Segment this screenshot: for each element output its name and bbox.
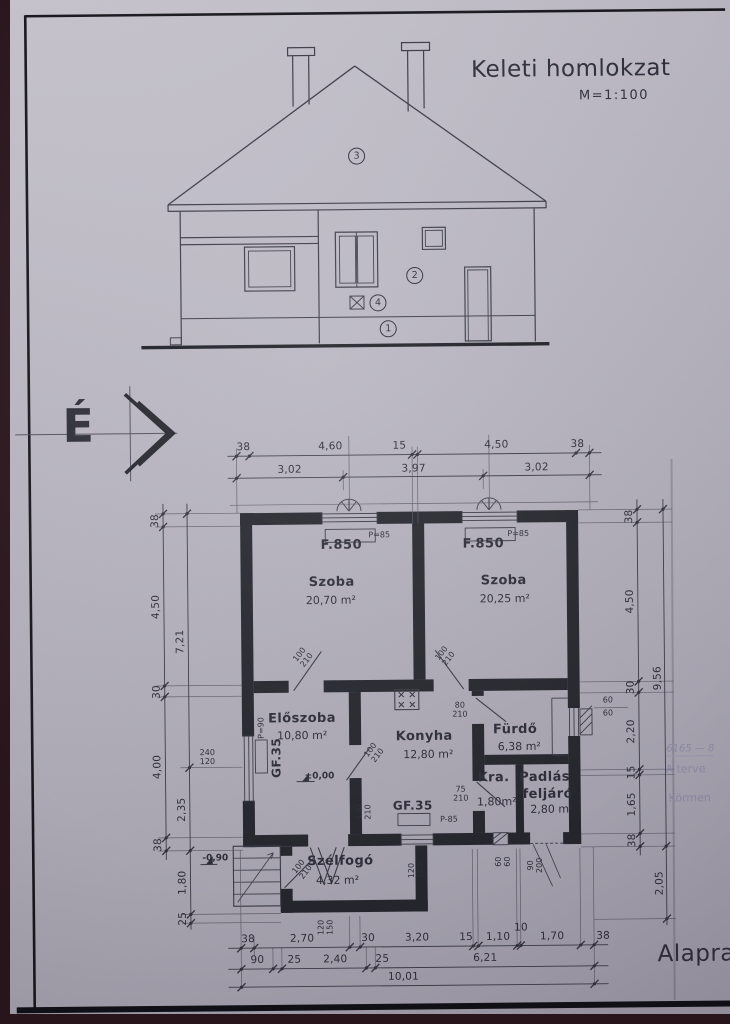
stove-icon <box>395 689 419 709</box>
dim-label: 1,10 <box>486 931 510 943</box>
window-small-bottom <box>493 833 508 845</box>
dim-label: 1,70 <box>540 930 564 942</box>
window-size-furdo-w: 60 <box>603 696 613 705</box>
bathtub-icon <box>552 698 569 755</box>
elevation-scale: M=1:100 <box>579 88 649 104</box>
dim-label: 15 <box>625 766 637 780</box>
elevation-marker-1: 1 <box>380 320 397 337</box>
radiator-eloszoba <box>255 740 267 773</box>
radiator-tag-p85-right: P=85 <box>507 529 529 538</box>
room-name-konyha: Konyha <box>396 729 453 745</box>
door-height: 210 <box>364 804 373 819</box>
dim-label: 38 <box>596 930 610 942</box>
plan-title: Alapra <box>657 940 730 967</box>
room-name-szoba1: Szoba <box>309 575 355 590</box>
window-tag-f850-right: F.850 <box>462 536 504 551</box>
room-area-kamra: 1,80m² <box>477 795 517 808</box>
window-height: 120 <box>200 757 215 766</box>
dim-label: 15 <box>459 931 473 943</box>
dim-label: 1,80 <box>176 871 188 895</box>
level-zero-label: ±0,00 <box>305 771 335 781</box>
window-tag-gf35-bottom: GF.35 <box>393 798 433 812</box>
room-area-konyha: 12,80 m² <box>403 748 453 761</box>
dim-label: 2,20 <box>625 719 637 743</box>
dim-label: 30 <box>151 685 163 699</box>
dim-label: 6,21 <box>473 952 497 964</box>
window-tag-f850-left: F.850 <box>320 538 362 553</box>
window-height: 150 <box>326 920 335 935</box>
dim-label: 2,05 <box>653 871 665 895</box>
dim-label: 38 <box>570 438 584 450</box>
room-name-eloszoba: Előszoba <box>268 711 336 727</box>
dim-label: 4,00 <box>151 755 163 779</box>
window-furdo <box>569 706 592 736</box>
door-size-entry: 130 210 <box>355 804 372 819</box>
roof-slope-right <box>355 64 546 203</box>
dim-label: 15 <box>392 440 406 452</box>
dim-label: 3,02 <box>277 464 301 476</box>
room-area-szelfogo: 4,32 m² <box>316 874 359 887</box>
north-arrow-icon <box>15 386 178 483</box>
window-konyha <box>401 833 433 845</box>
ground-line <box>141 344 549 348</box>
elevation-marker-4: 4 <box>369 294 386 311</box>
door-size-furdo: 80 210 <box>452 702 467 719</box>
radiator-tag-p85-left: P=85 <box>368 530 390 539</box>
room-name-szoba2: Szoba <box>481 573 527 588</box>
window-size-ref: 120 150 <box>317 920 334 935</box>
dim-label: 4,50 <box>150 595 162 619</box>
elevation-drawing <box>139 41 550 347</box>
door-height: 210 <box>452 710 467 719</box>
dim-label: 3,20 <box>405 931 429 943</box>
window-height: 60 <box>503 857 512 867</box>
dim-label: 10 <box>514 921 528 933</box>
radiator-konyha <box>398 813 430 825</box>
elevation-window-left <box>244 247 294 291</box>
dim-label: 25 <box>375 953 389 965</box>
window-tag-gf35-left: GF.35 <box>269 738 283 778</box>
dim-label: 3,97 <box>401 462 425 474</box>
room-area-szoba2: 20,25 m² <box>480 592 530 605</box>
dim-label: 3,02 <box>524 461 548 473</box>
room-area-szoba1: 20,70 m² <box>306 594 356 607</box>
door-height: 210 <box>453 794 468 803</box>
dim-label: 38 <box>626 834 638 848</box>
dim-label: 4,50 <box>484 439 508 451</box>
vent-box-icon <box>350 296 364 309</box>
room-name-padlas-2: feljáró <box>522 787 572 802</box>
dim-label: 9,56 <box>651 666 663 690</box>
dim-label: 38 <box>149 514 161 528</box>
dim-label: 30 <box>361 932 375 944</box>
dim-label: 38 <box>241 933 255 945</box>
dim-label: 90 <box>250 954 264 966</box>
dim-label: 2,40 <box>323 953 347 965</box>
stamp-note-3: Körmen <box>669 791 711 804</box>
room-name-padlas-1: Padlás <box>519 770 570 785</box>
dim-label: 4,60 <box>318 440 342 452</box>
dim-label: 7,21 <box>174 630 186 654</box>
room-area-padlas: 2,80 m² <box>530 803 573 816</box>
window-height: 150 <box>416 863 425 878</box>
level-minus-label: -0,90 <box>202 853 228 863</box>
dim-label: 4,50 <box>624 589 636 613</box>
window-size-konyha: 120 150 <box>408 863 425 878</box>
room-name-szelfogo: Szélfogó <box>307 853 373 869</box>
dim-label: 30 <box>625 681 637 695</box>
dim-label: 38 <box>236 441 250 453</box>
dim-label: 25 <box>177 912 189 926</box>
dim-label: 25 <box>287 954 301 966</box>
level-markers <box>200 774 316 864</box>
dim-label: 10,01 <box>388 971 419 983</box>
dim-label: 38 <box>623 510 635 524</box>
elevation-window-small <box>422 227 445 249</box>
dim-label: 1,65 <box>626 792 638 816</box>
window-size-furdo-h: 60 <box>603 709 613 718</box>
room-area-eloszoba: 10,80 m² <box>277 729 327 742</box>
door-size-padlas: 90 200 <box>527 858 544 873</box>
elevation-door-right <box>465 267 492 341</box>
room-name-kamra: Kra. <box>478 770 510 785</box>
window-size-eloszoba: 240 120 <box>200 749 215 766</box>
linework <box>0 0 730 1024</box>
photographed-drawing-sheet: Keleti homlokzat M=1:100 3 2 4 1 É 38 4,… <box>0 0 730 1024</box>
elevation-double-door <box>335 232 378 287</box>
room-area-furdo: 6,38 m² <box>498 740 541 753</box>
room-name-furdo: Fürdő <box>493 722 537 737</box>
elevation-title: Keleti homlokzat <box>471 55 671 83</box>
north-label: É <box>62 399 94 453</box>
roof-slope-left <box>167 66 356 205</box>
radiator-tag-p85-bottom: P-85 <box>440 815 458 824</box>
window-eloszoba <box>242 736 255 801</box>
stamp-note-2: A terve <box>665 762 705 775</box>
door-height: 200 <box>535 858 544 873</box>
door-size-kamra: 75 210 <box>453 786 468 803</box>
elevation-marker-2: 2 <box>406 267 423 284</box>
radiator-tag-p90: P=90 <box>256 717 265 739</box>
dim-label: 2,70 <box>290 933 314 945</box>
window-size-bottom-small: 60 60 <box>495 857 512 867</box>
stamp-note-1: 6165 — 8 <box>666 743 714 756</box>
chimney-right <box>401 42 430 111</box>
elevation-marker-3: 3 <box>348 147 365 164</box>
drawing-content: Keleti homlokzat M=1:100 3 2 4 1 É 38 4,… <box>0 0 730 1024</box>
dim-label: 2,35 <box>176 798 188 822</box>
dim-label: 38 <box>152 838 164 852</box>
